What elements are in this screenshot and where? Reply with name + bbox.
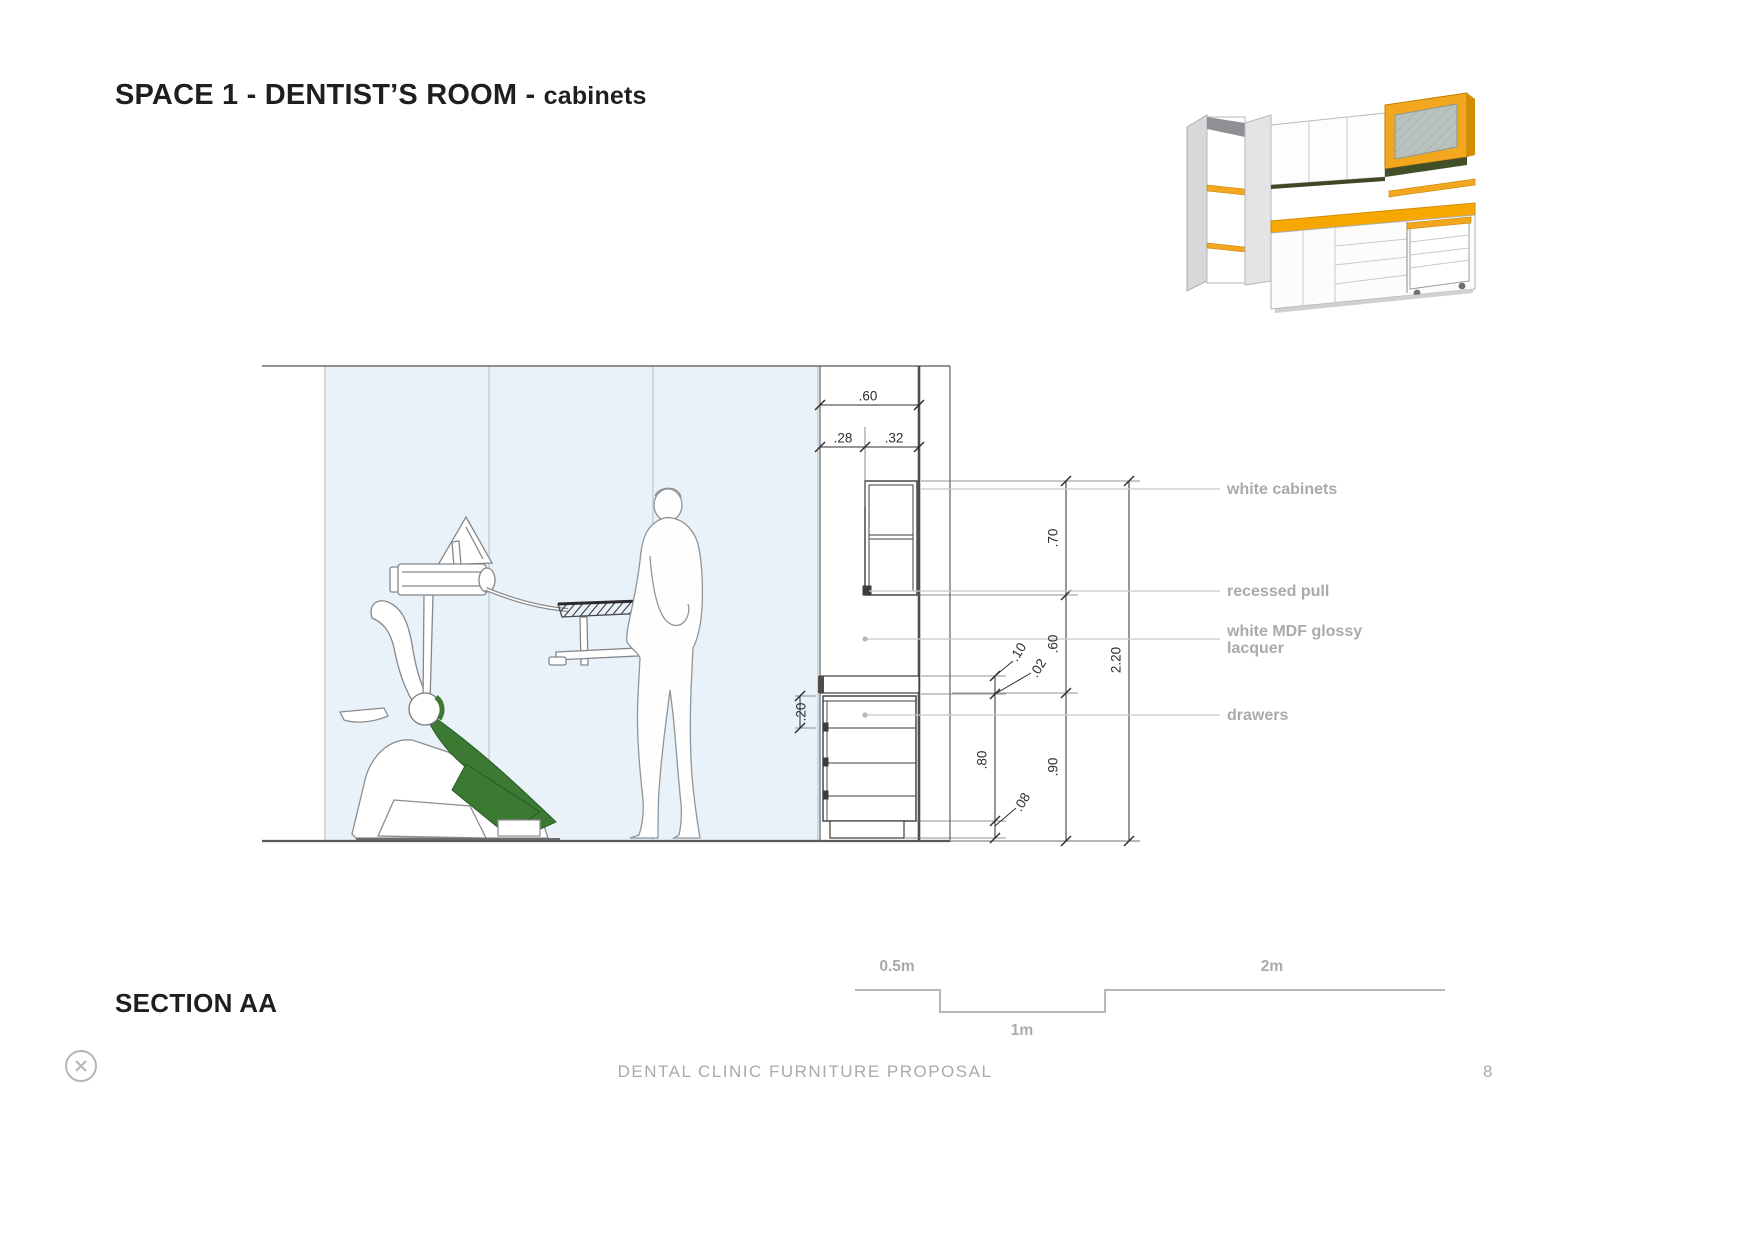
counter-section	[818, 676, 919, 696]
dim-top-left: .28	[834, 431, 853, 446]
drawer-cart	[1410, 220, 1469, 289]
scale-bar	[855, 990, 1445, 1012]
dim-top-drawer: .20	[794, 703, 809, 722]
scale-label-two-m: 2m	[1261, 958, 1283, 976]
page-title-sub: cabinets	[544, 82, 647, 110]
annotation-white-cabinets: white cabinets	[1227, 481, 1337, 498]
yellow-shelf	[1389, 179, 1475, 197]
wall-cabinet-section	[863, 481, 917, 595]
scale-label-half-m: 0.5m	[879, 958, 914, 976]
section-drawing-svg	[0, 0, 1754, 1240]
section-label: SECTION AA	[115, 988, 277, 1019]
brand-logo	[64, 1049, 98, 1088]
cabinet-3d-render	[1187, 93, 1475, 313]
scale-label-one-m: 1m	[1011, 1022, 1033, 1040]
page-title-main: SPACE 1 - DENTIST’S ROOM -	[115, 79, 544, 111]
footer-title: DENTAL CLINIC FURNITURE PROPOSAL	[618, 1062, 993, 1082]
upper-cabinets	[1271, 113, 1385, 185]
dim-total-height: 2.20	[1109, 647, 1124, 673]
drawer-unit-section	[823, 696, 916, 838]
annotation-mdf-line2: lacquer	[1227, 640, 1362, 657]
dim-top-total: .60	[859, 389, 878, 404]
dim-upper-height: .70	[1046, 529, 1061, 548]
page-title: SPACE 1 - DENTIST’S ROOM - cabinets	[115, 79, 647, 112]
annotation-mdf-line1: white MDF glossy	[1227, 623, 1362, 640]
proposal-page: SPACE 1 - DENTIST’S ROOM - cabinets .60 …	[0, 0, 1754, 1240]
annotation-recessed-pull: recessed pull	[1227, 583, 1329, 600]
annotation-mdf: white MDF glossy lacquer	[1227, 623, 1362, 657]
dim-base-height: .90	[1046, 758, 1061, 777]
annotation-drawers: drawers	[1227, 707, 1288, 724]
dim-mid-height: .60	[1046, 635, 1061, 654]
plinth-section	[830, 821, 904, 838]
dim-drawer-stack: .80	[975, 751, 990, 770]
page-number: 8	[1483, 1062, 1492, 1082]
dim-top-right: .32	[885, 431, 904, 446]
